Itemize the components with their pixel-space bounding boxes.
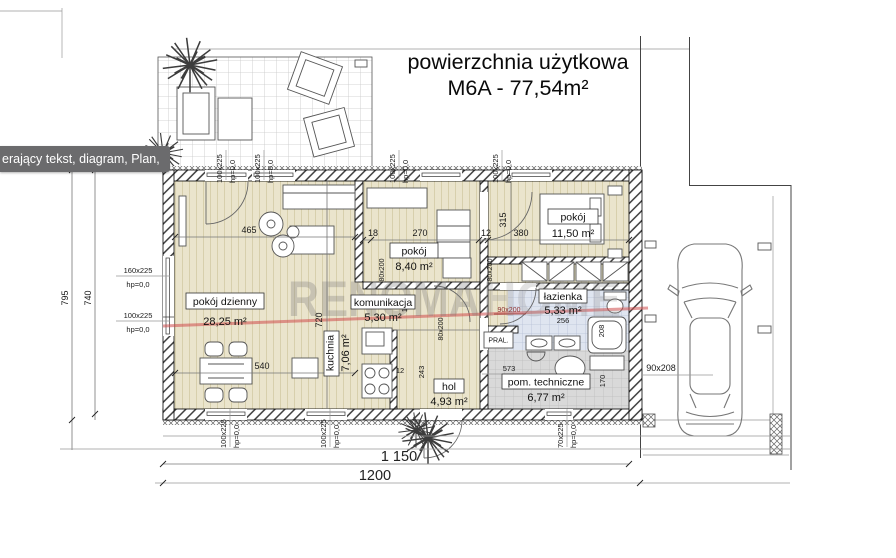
dim-573: 573 [503,364,516,373]
room-label-room1: pokój 8,40 m² [390,243,438,273]
svg-text:8,40 m²: 8,40 m² [395,261,433,273]
window [420,170,462,181]
dim-315: 315 [498,212,508,227]
plan-title-line2: M6A - 77,54m² [368,76,668,102]
alt-text-tooltip: erający tekst, diagram, Plan, [0,146,170,172]
dim-243: 243 [417,366,426,379]
dim-795: 795 [60,290,70,305]
window-hp-label: hp=0,0 [232,425,241,448]
svg-text:pom. techniczne: pom. techniczne [508,377,585,389]
svg-text:5,33 m²: 5,33 m² [544,305,582,317]
window-size-label: 100x225 [124,311,153,320]
door-size-label: 80x200 [379,258,386,281]
dim-18: 18 [368,228,378,238]
dim-540: 540 [254,361,269,371]
dim-car-space: 90x208 [646,363,676,373]
svg-text:4,93 m²: 4,93 m² [430,396,468,408]
door-size-label: 80x200 [438,317,445,340]
window [545,409,573,420]
sofa [283,185,355,209]
svg-text:kuchnia: kuchnia [325,335,337,371]
bath-door-size-label: 90x200 [498,307,521,314]
svg-text:6,77 m²: 6,77 m² [527,392,565,404]
plan-title-line1: powierzchnia użytkowa [368,50,668,76]
dim-1200: 1200 [359,468,391,484]
door-size-label: 80x200 [487,258,494,281]
window-size-label: 70x225 [556,423,565,448]
window-size-label: 100x225 [491,154,500,183]
svg-text:pokój: pokój [560,212,585,224]
svg-text:28,25 m²: 28,25 m² [203,316,247,328]
svg-text:pokój dzienny: pokój dzienny [193,296,258,308]
svg-text:komunikacja: komunikacja [354,297,413,309]
window-hp-label: hp=0,0 [126,280,149,289]
car [668,244,752,436]
washer-label: PRAL. [488,338,508,345]
window-size-label: 100x225 [388,154,397,183]
dim-256: 256 [557,316,570,325]
dim-12: 12 [481,228,491,238]
entrance-door-opening [420,409,462,420]
window [163,256,174,336]
tv-cabinet [179,196,186,246]
room-label-bath: łazienka 5,33 m² [539,289,587,317]
window-hp-label: hp=0,0 [401,160,410,183]
svg-text:11,50 m²: 11,50 m² [552,228,595,240]
window [205,170,248,181]
window-size-label: 100x225 [253,154,262,183]
window-hp-label: hp=0,0 [266,160,275,183]
window-hp-label: hp=0,0 [126,325,149,334]
window [205,409,247,420]
window-hp-label: hp=0,0 [569,425,578,448]
dim-1150: 1 150 [381,449,417,465]
dim-380: 380 [513,228,528,238]
svg-text:hol: hol [442,381,456,393]
dim-720: 720 [314,312,324,327]
alt-text-tooltip-text: erający tekst, diagram, Plan, [2,152,160,166]
svg-text:7,06 m²: 7,06 m² [340,334,352,372]
window [510,170,552,181]
room-label-kitchen: kuchnia 7,06 m² [324,331,352,376]
window-hp-label: hp=0,0 [504,160,513,183]
dim-465: 465 [241,225,256,235]
svg-text:łazienka: łazienka [544,291,583,303]
dim-270: 270 [412,228,427,238]
window-hp-label: hp=0,0 [332,425,341,448]
window-size-label: 100x225 [215,154,224,183]
dim-208: 208 [597,325,606,338]
window-size-label: 100x225 [219,419,228,448]
window-hp-label: hp=0,0 [228,160,237,183]
window [305,409,347,420]
plan-title: powierzchnia użytkowa M6A - 77,54m² [368,50,668,102]
dim-740: 740 [83,290,93,305]
window-size-label: 160x225 [124,266,153,275]
window-size-label: 100x225 [319,419,328,448]
floor-plan-page: RENOMA HOME 795 740 1 150 1200 465 720 5… [0,0,896,558]
dim-170: 170 [598,375,607,388]
dim-12b: 12 [396,366,404,375]
svg-text:5,30 m²: 5,30 m² [364,312,402,324]
svg-text:pokój: pokój [401,246,426,258]
